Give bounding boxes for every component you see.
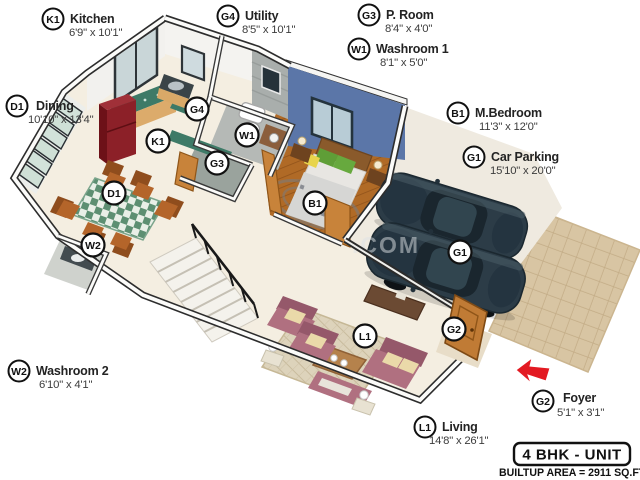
svg-text:Kitchen: Kitchen: [70, 12, 114, 26]
svg-text:W2: W2: [11, 366, 27, 378]
svg-text:K1: K1: [151, 136, 165, 148]
svg-text:G1: G1: [453, 247, 467, 259]
svg-text:Washroom 1: Washroom 1: [376, 42, 449, 56]
svg-text:G1: G1: [467, 152, 481, 164]
refrigerator: [99, 94, 136, 164]
svg-text:Foyer: Foyer: [563, 391, 596, 405]
svg-text:L1: L1: [419, 422, 431, 434]
floorplan-page: .COM K1 G4: [0, 0, 640, 480]
svg-text:D1: D1: [107, 188, 121, 200]
svg-text:B1: B1: [451, 108, 465, 120]
floorplan-canvas: .COM K1 G4: [0, 0, 640, 480]
svg-text:14'8" x 26'1": 14'8" x 26'1": [429, 435, 489, 447]
svg-text:G4: G4: [190, 104, 204, 116]
plan-label-b1: B1: [304, 192, 327, 215]
plan-label-k1: K1: [147, 130, 170, 153]
svg-text:6'10" x 4'1": 6'10" x 4'1": [39, 379, 92, 391]
plan-label-w1: W1: [236, 124, 259, 147]
plan-label-w2: W2: [82, 234, 105, 257]
svg-text:11'3" x 12'0": 11'3" x 12'0": [479, 121, 538, 133]
plan-label-g4: G4: [186, 98, 209, 121]
unit-title: 4 BHK - UNIT: [522, 447, 621, 464]
plan-label-g1: G1: [449, 241, 472, 264]
svg-text:K1: K1: [46, 14, 60, 26]
svg-text:8'5" x 10'1": 8'5" x 10'1": [242, 24, 295, 36]
plan-label-d1: D1: [103, 182, 126, 205]
svg-text:G2: G2: [447, 324, 461, 336]
svg-text:8'4" x 4'0": 8'4" x 4'0": [385, 23, 432, 35]
svg-text:W2: W2: [85, 240, 101, 252]
svg-text:D1: D1: [10, 101, 24, 113]
plan-label-g3: G3: [206, 152, 229, 175]
svg-text:G3: G3: [362, 10, 376, 22]
svg-text:6'9" x 10'1": 6'9" x 10'1": [69, 27, 122, 39]
plan-label-g2: G2: [443, 318, 466, 341]
builtup-area-text: BUILTUP AREA = 2911 SQ.FT.: [499, 467, 640, 479]
svg-text:15'10" x 20'0": 15'10" x 20'0": [490, 165, 556, 177]
svg-text:G3: G3: [210, 158, 224, 170]
svg-text:10'10" x 13'4": 10'10" x 13'4": [28, 114, 94, 126]
svg-text:W1: W1: [239, 130, 255, 142]
svg-text:5'1" x 3'1": 5'1" x 3'1": [557, 407, 604, 419]
plan-label-l1: L1: [354, 325, 377, 348]
svg-text:Dining: Dining: [36, 99, 74, 113]
svg-text:8'1" x 5'0": 8'1" x 5'0": [380, 57, 427, 69]
svg-text:B1: B1: [308, 198, 322, 210]
svg-text:W1: W1: [351, 44, 367, 56]
svg-text:M.Bedroom: M.Bedroom: [475, 106, 542, 120]
svg-text:G4: G4: [221, 11, 235, 23]
svg-text:G2: G2: [536, 396, 550, 408]
svg-text:L1: L1: [359, 331, 371, 343]
svg-text:Utility: Utility: [245, 9, 279, 23]
unit-title-box: 4 BHK - UNIT: [514, 443, 630, 465]
svg-text:Living: Living: [442, 420, 478, 434]
svg-text:P. Room: P. Room: [386, 8, 434, 22]
svg-text:Car Parking: Car Parking: [491, 150, 559, 164]
svg-text:Washroom 2: Washroom 2: [36, 364, 109, 378]
